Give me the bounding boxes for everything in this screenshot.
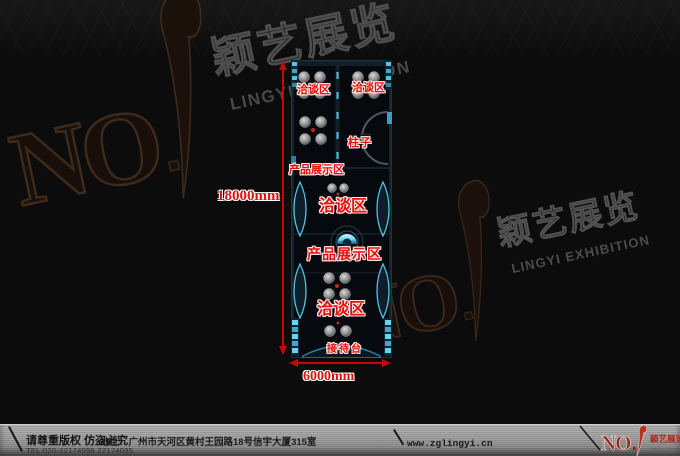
dimension-label-height: 18000mm [217,189,280,204]
partition-lower [292,272,390,274]
area-label-display-main: 产品展示区 [307,247,382,261]
area-label-meeting-lower: 洽谈区 [317,302,365,318]
area-label-pillar: 柱子 [348,138,372,149]
area-label-display-upper: 产品展示区 [289,165,344,176]
footer-logo: NO 颖艺展览 LINGYI EXHIBITION [578,423,680,456]
dimension-label-width: 6000mm [303,370,354,384]
top-wall [292,61,391,66]
corner-pillar-top-right [385,60,392,90]
corner-pillar-bottom-left [291,318,299,356]
footer-bar: 请尊重版权 仿盗必究 TEL:020-22174096 22174095 地址：… [0,424,680,456]
area-label-meeting-middle: 洽谈区 [319,199,367,215]
footer-address: 地址：广州市天河区黄村王园路18号信宇大厦315室 [100,434,316,448]
design-canvas: NO 颖艺展览 LINGYI EXHIBITION NO 颖艺展览 LINGYI… [0,0,680,456]
footer-logo-swoosh [636,425,646,456]
footer-website: www.zglingyi.cn [407,438,493,449]
dimension-arrow-vertical [282,66,284,350]
logo-dot [169,160,180,171]
footer-logo-no-text: NO [601,431,631,455]
dimension-arrow-horizontal [294,362,386,364]
area-label-meeting-top-right: 洽谈区 [352,83,385,94]
footer-logo-brand-en: LINGYI EXHIBITION [650,447,680,451]
footer-divider-slash-web [393,429,404,445]
corner-pillar-bottom-right [384,318,392,356]
right-wall-accent [387,112,392,124]
logo-dot [465,312,473,320]
area-label-meeting-top-left: 洽谈区 [297,85,330,96]
logo-no-text: NO [1,83,169,228]
footer-divider-slash-left [8,426,22,451]
footer-logo-brand-cn: 颖艺展览 [650,434,680,444]
floor-plan: 洽谈区 洽谈区 柱子 产品展示区 洽谈区 产品展示区 洽谈区 接待台 [291,60,392,358]
divider-wall [336,66,339,168]
area-label-reception: 接待台 [327,345,363,355]
footer-logo-slash [580,426,600,450]
footer-logo-dot [633,447,636,450]
